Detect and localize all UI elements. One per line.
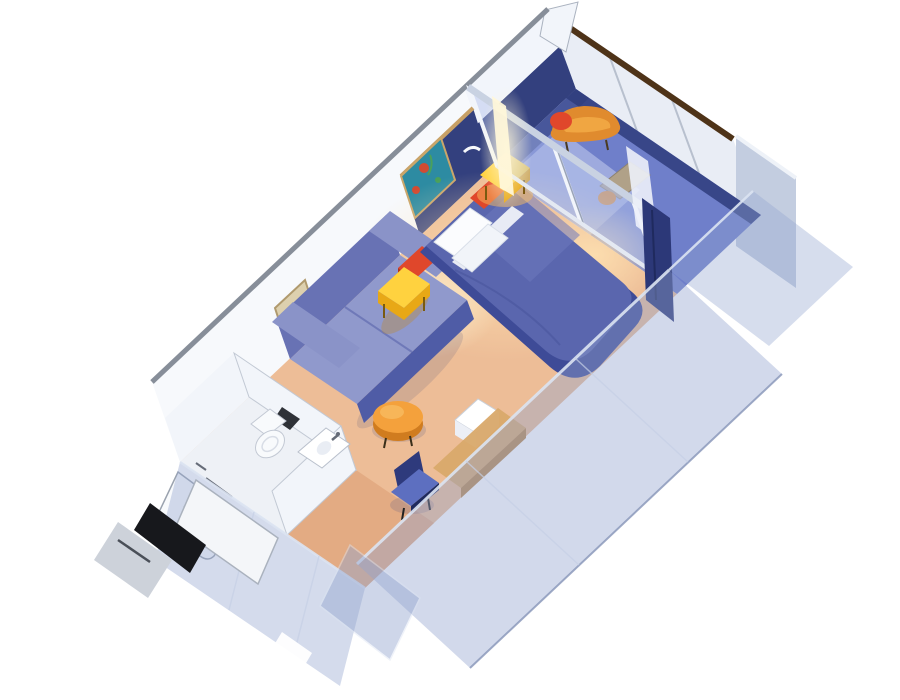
sink-faucet-head — [336, 432, 340, 436]
stateroom-rendering-canvas — [0, 0, 900, 700]
ottoman-highlight — [380, 405, 404, 419]
reef-artwork-red-coral — [419, 163, 429, 173]
door-light-glow — [480, 86, 532, 210]
stateroom-3d-cutaway — [0, 0, 900, 700]
balcony-chair-cushion — [550, 112, 572, 130]
